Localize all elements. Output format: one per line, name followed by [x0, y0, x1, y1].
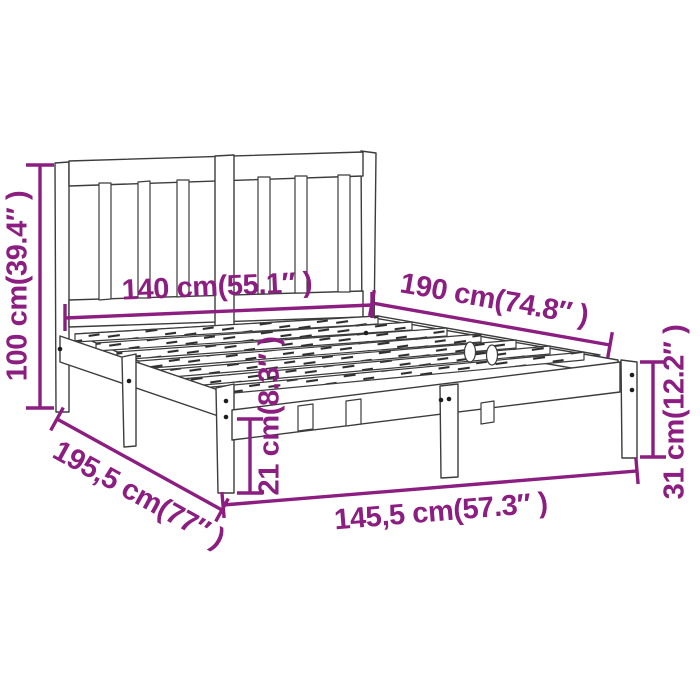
dimension-label-headboard-height: 100 cm(39.4″ ): [2, 191, 34, 381]
screw-dot: [447, 397, 452, 402]
dimension-headboard-height: 100 cm(39.4″ ): [2, 165, 54, 408]
slat-bracket: [298, 404, 313, 431]
slat-holder-loop: [465, 342, 476, 362]
screw-dot: [224, 415, 229, 420]
screw-dot: [630, 373, 635, 378]
screw-dot: [224, 399, 229, 404]
diagram-canvas: 100 cm(39.4″ ) 140 cm(55.1″ ) 190 cm(74.…: [0, 0, 700, 700]
dimension-total-length: 195,5 cm(77″ ): [48, 408, 230, 555]
bed-frame-dimension-diagram: 100 cm(39.4″ ) 140 cm(55.1″ ) 190 cm(74.…: [0, 0, 700, 700]
headboard-left-post: [55, 162, 69, 412]
dimension-label-mattress-length: 190 cm(74.8″ ): [398, 267, 591, 332]
screw-dot: [127, 379, 132, 384]
headboard-slat: [99, 183, 111, 300]
screw-dot: [364, 331, 369, 336]
dimension-label-under-bed-clearance: 21 cm(8.3″ ): [254, 336, 286, 495]
dimension-label-foot-end-height: 31 cm(12.2″ ): [659, 325, 691, 500]
left-middle-leg: [122, 354, 136, 447]
foot-right-leg: [621, 360, 637, 458]
slat-bracket: [346, 399, 361, 426]
screw-dot: [439, 398, 444, 403]
slat-bracket: [481, 401, 494, 424]
screw-dot: [630, 388, 635, 393]
dimension-foot-end-height: 31 cm(12.2″ ): [640, 325, 691, 500]
screw-dot: [58, 347, 63, 352]
headboard-slat: [338, 175, 350, 292]
dimension-label-total-length: 195,5 cm(77″ ): [48, 435, 230, 555]
slat-holder-loop: [487, 345, 498, 365]
